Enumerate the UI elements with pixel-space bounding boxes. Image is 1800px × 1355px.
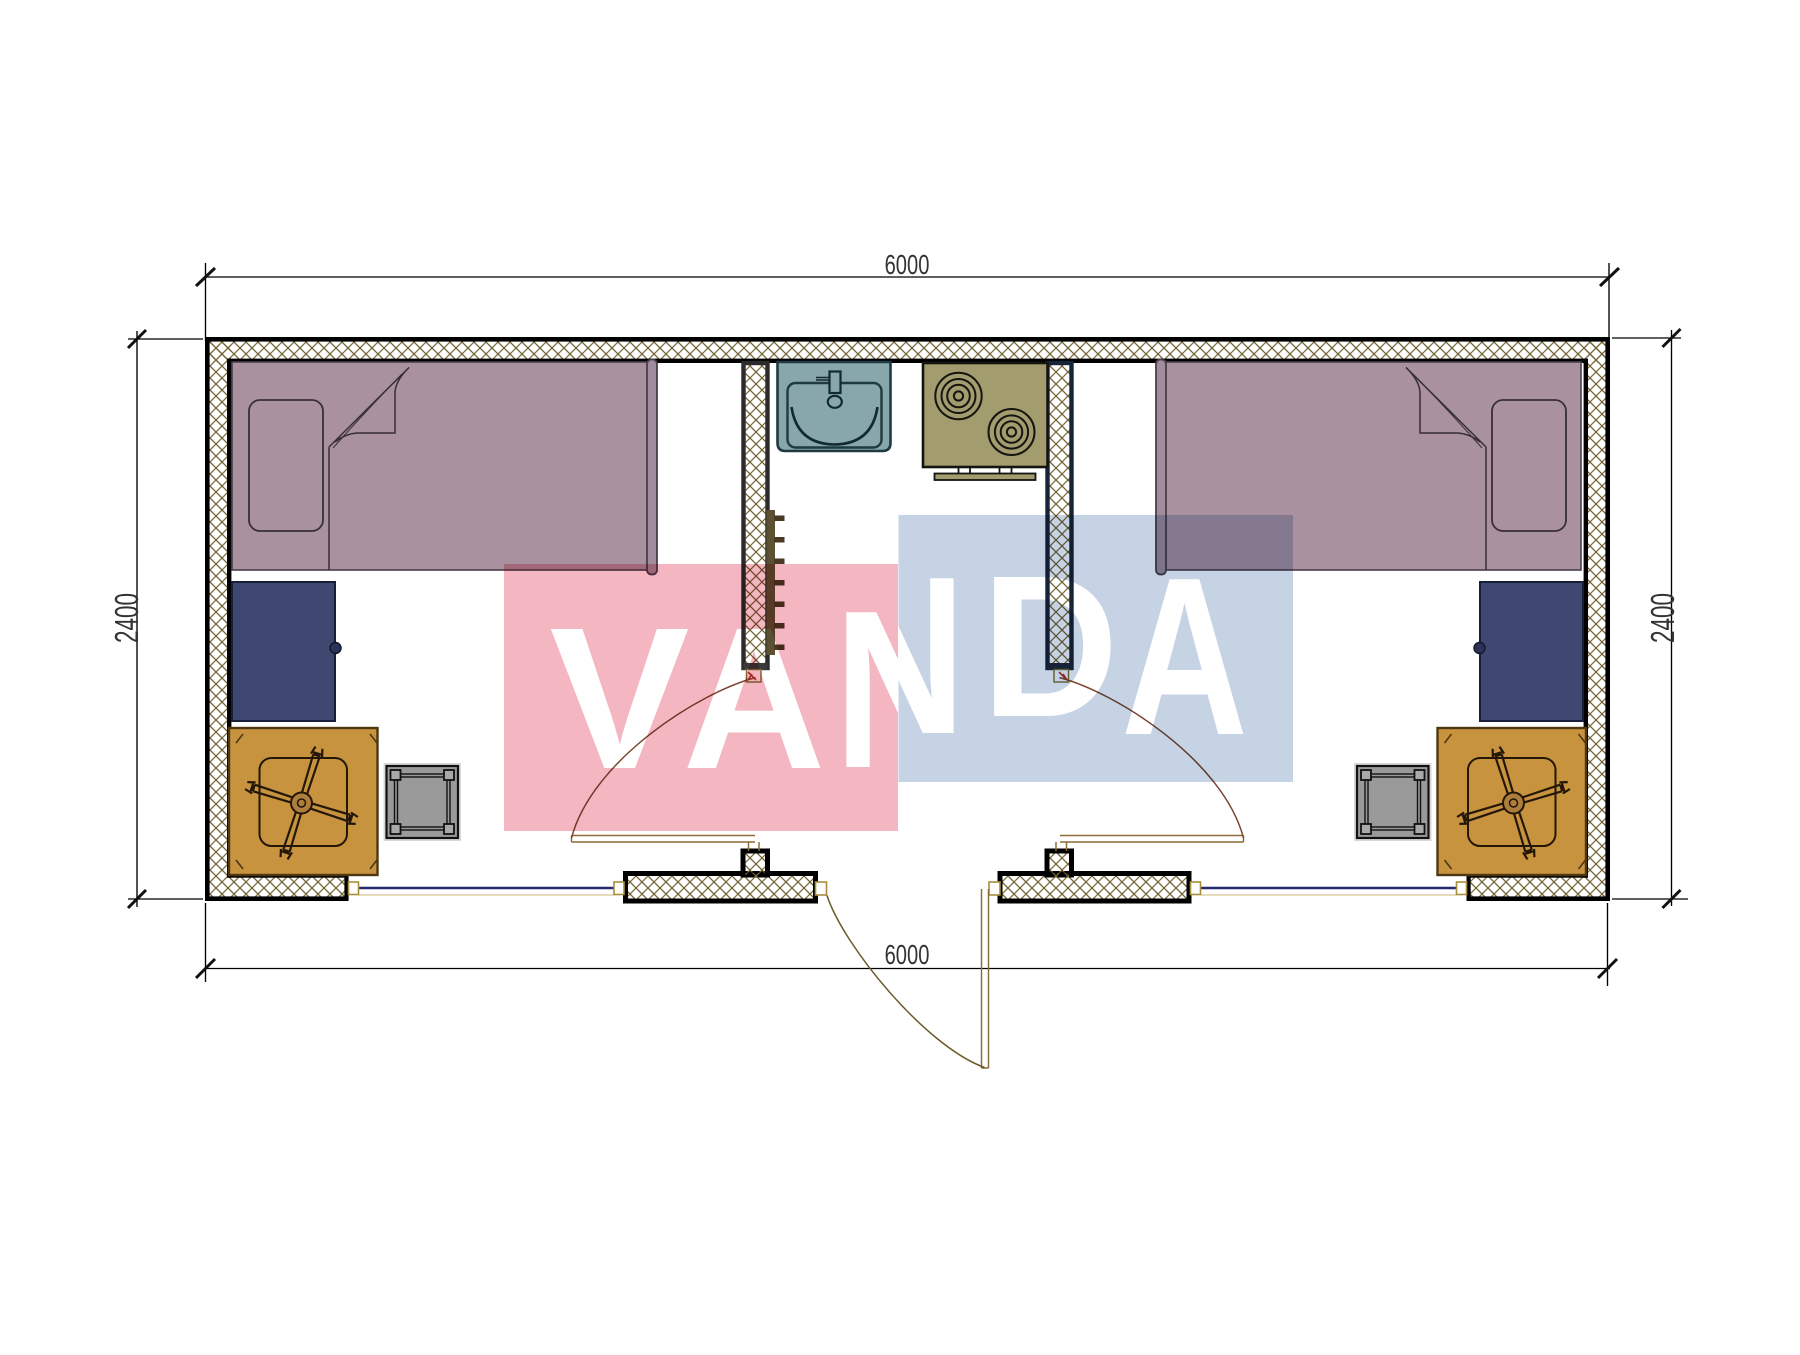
svg-text:6000: 6000	[885, 250, 930, 281]
svg-text:2400: 2400	[108, 593, 145, 643]
svg-text:V: V	[549, 585, 689, 811]
svg-text:A: A	[1121, 530, 1248, 782]
svg-text:2400: 2400	[1644, 593, 1681, 643]
svg-text:D: D	[981, 534, 1118, 760]
svg-text:A: A	[683, 586, 826, 811]
svg-text:6000: 6000	[885, 940, 930, 971]
